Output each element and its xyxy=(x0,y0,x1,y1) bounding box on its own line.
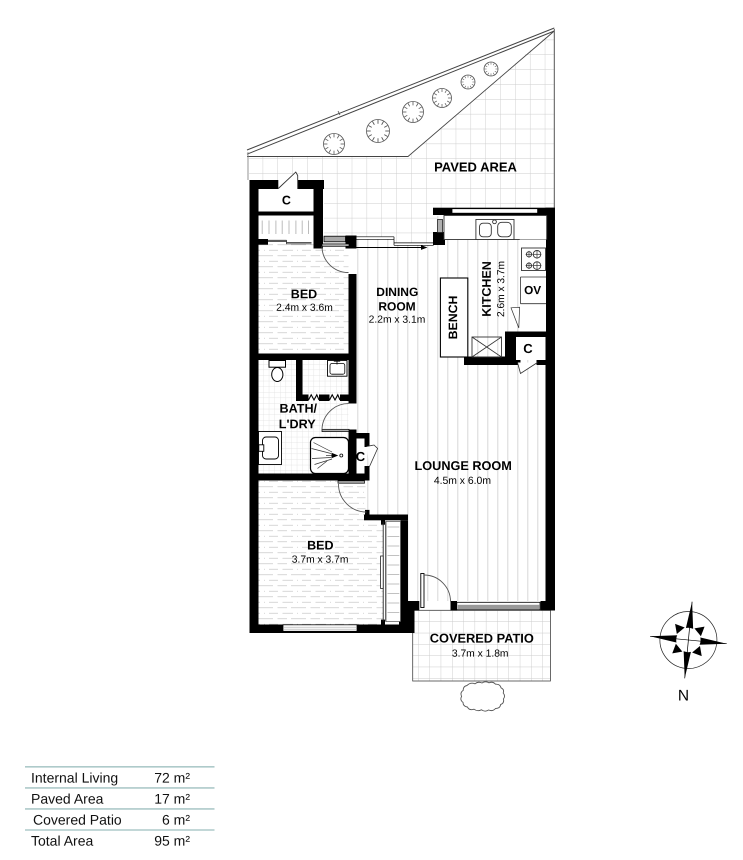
svg-text:4.5m x 6.0m: 4.5m x 6.0m xyxy=(434,476,491,487)
svg-text:Paved Area: Paved Area xyxy=(31,791,104,807)
svg-text:2.6m x 3.7m: 2.6m x 3.7m xyxy=(496,261,507,317)
svg-text:Total Area: Total Area xyxy=(31,833,93,849)
svg-text:BED: BED xyxy=(291,287,317,301)
svg-text:C: C xyxy=(523,341,533,356)
svg-text:2.4m x 3.6m: 2.4m x 3.6m xyxy=(276,303,333,314)
svg-text:BATH/: BATH/ xyxy=(280,402,318,416)
svg-text:3.7m x 1.8m: 3.7m x 1.8m xyxy=(452,649,509,660)
svg-text:ROOM: ROOM xyxy=(378,299,415,313)
svg-text:BENCH: BENCH xyxy=(446,296,460,340)
svg-text:N: N xyxy=(678,687,689,704)
svg-text:BED: BED xyxy=(307,538,333,552)
svg-text:DINING: DINING xyxy=(376,285,418,299)
svg-text:72 m²: 72 m² xyxy=(154,770,190,786)
svg-text:OV: OV xyxy=(524,283,541,297)
svg-text:C: C xyxy=(282,193,291,207)
svg-text:PAVED AREA: PAVED AREA xyxy=(434,159,517,174)
svg-text:3.7m x 3.7m: 3.7m x 3.7m xyxy=(292,555,349,566)
svg-text:17 m²: 17 m² xyxy=(154,791,190,807)
svg-text:2.2m x 3.1m: 2.2m x 3.1m xyxy=(369,315,426,326)
svg-text:COVERED PATIO: COVERED PATIO xyxy=(430,631,534,646)
svg-text:KITCHEN: KITCHEN xyxy=(480,261,494,317)
svg-text:L'DRY: L'DRY xyxy=(279,417,316,431)
svg-text:6 m²: 6 m² xyxy=(162,812,190,828)
svg-text:LOUNGE ROOM: LOUNGE ROOM xyxy=(415,459,512,473)
svg-text:Internal Living: Internal Living xyxy=(31,770,118,786)
svg-text:Covered Patio: Covered Patio xyxy=(33,812,122,828)
svg-text:C: C xyxy=(356,449,366,464)
svg-text:95 m²: 95 m² xyxy=(154,833,190,849)
